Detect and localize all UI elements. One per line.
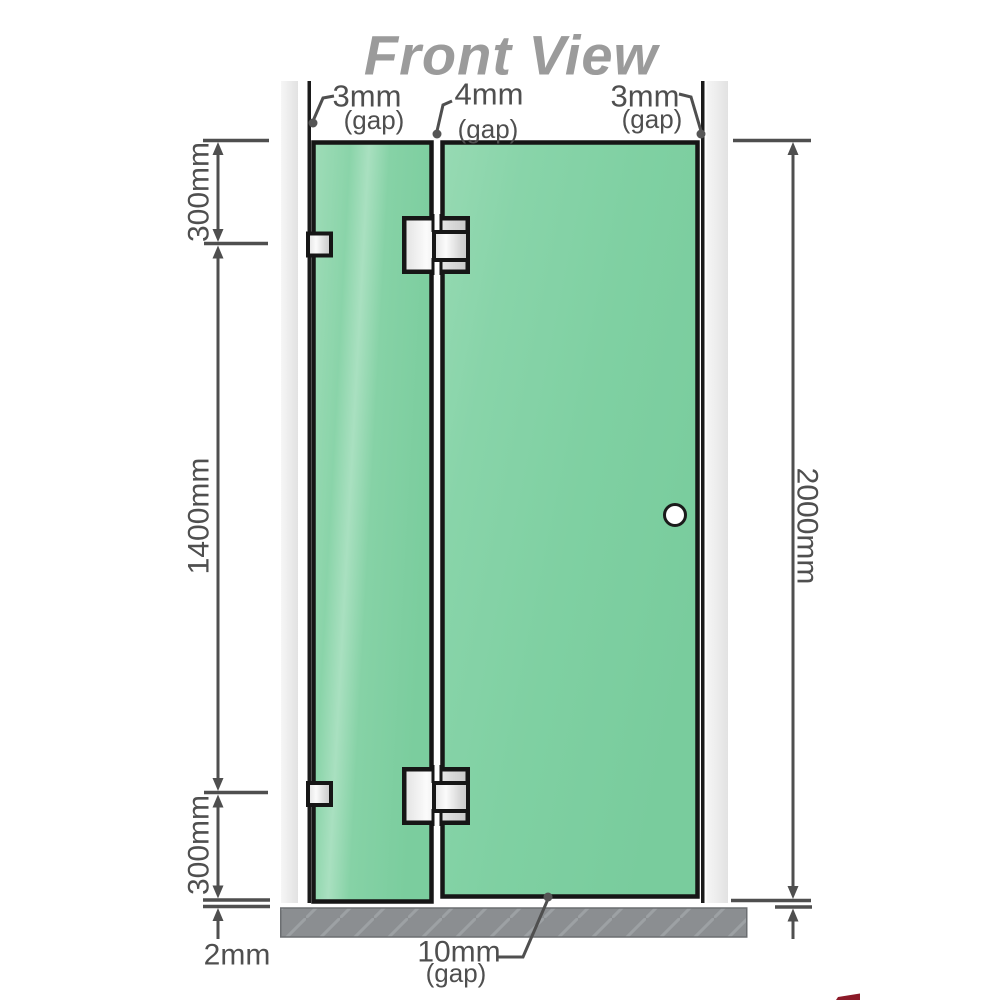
dim-label-2mm: 2mm xyxy=(204,939,271,972)
dim-label-2000mm: 2000mm xyxy=(791,468,824,585)
hinge-bottom-gap-white-upper xyxy=(435,765,440,783)
logo-fragment xyxy=(836,994,860,1000)
floor-slab xyxy=(281,908,747,937)
arrowhead xyxy=(788,886,799,899)
left-wall xyxy=(281,81,298,903)
arrowhead xyxy=(213,246,224,259)
arrowhead xyxy=(213,908,224,921)
hinge-top-gap-white-upper xyxy=(435,214,440,232)
leader-dot xyxy=(433,130,442,139)
leader-4mm-middle xyxy=(437,101,452,131)
shower-screen-front-view-diagram: Front View 3mm (gap) 4mm (gap) 3mm (gap)… xyxy=(0,0,1000,1000)
door-knob xyxy=(665,505,686,526)
gap-label-top-middle-suffix: (gap) xyxy=(458,114,519,144)
leader-dot xyxy=(309,119,318,128)
dim-label-300mm-bottom: 300mm xyxy=(183,795,216,895)
leader-dot xyxy=(697,130,706,139)
hinge-top xyxy=(404,214,468,275)
diagram-canvas: Front View 3mm (gap) 4mm (gap) 3mm (gap)… xyxy=(0,0,1000,1000)
right-wall xyxy=(707,81,729,903)
leader-3mm-left xyxy=(313,96,334,121)
arrowhead xyxy=(788,142,799,155)
gap-label-bottom-suffix: (gap) xyxy=(426,958,487,988)
arrowhead xyxy=(788,909,799,922)
arrowhead xyxy=(213,778,224,791)
right-wall-edge-line xyxy=(701,81,705,903)
gap-label-top-right-suffix: (gap) xyxy=(622,104,683,134)
glass-panels xyxy=(314,143,698,902)
hinge-top-clamp xyxy=(434,232,468,260)
gap-label-top-left-suffix: (gap) xyxy=(344,105,405,135)
hinge-bottom-clamp xyxy=(434,783,468,811)
door-glass-panel xyxy=(443,143,698,897)
wall-bracket-bottom xyxy=(308,783,331,805)
leader-dot xyxy=(544,893,553,902)
hinge-bottom xyxy=(404,765,468,826)
dim-label-300mm-top: 300mm xyxy=(183,142,216,242)
left-wall-edge-line xyxy=(308,81,312,903)
dim-label-1400mm: 1400mm xyxy=(183,458,216,575)
gap-label-top-middle-value: 4mm xyxy=(455,77,524,112)
wall-bracket-top xyxy=(308,234,331,256)
